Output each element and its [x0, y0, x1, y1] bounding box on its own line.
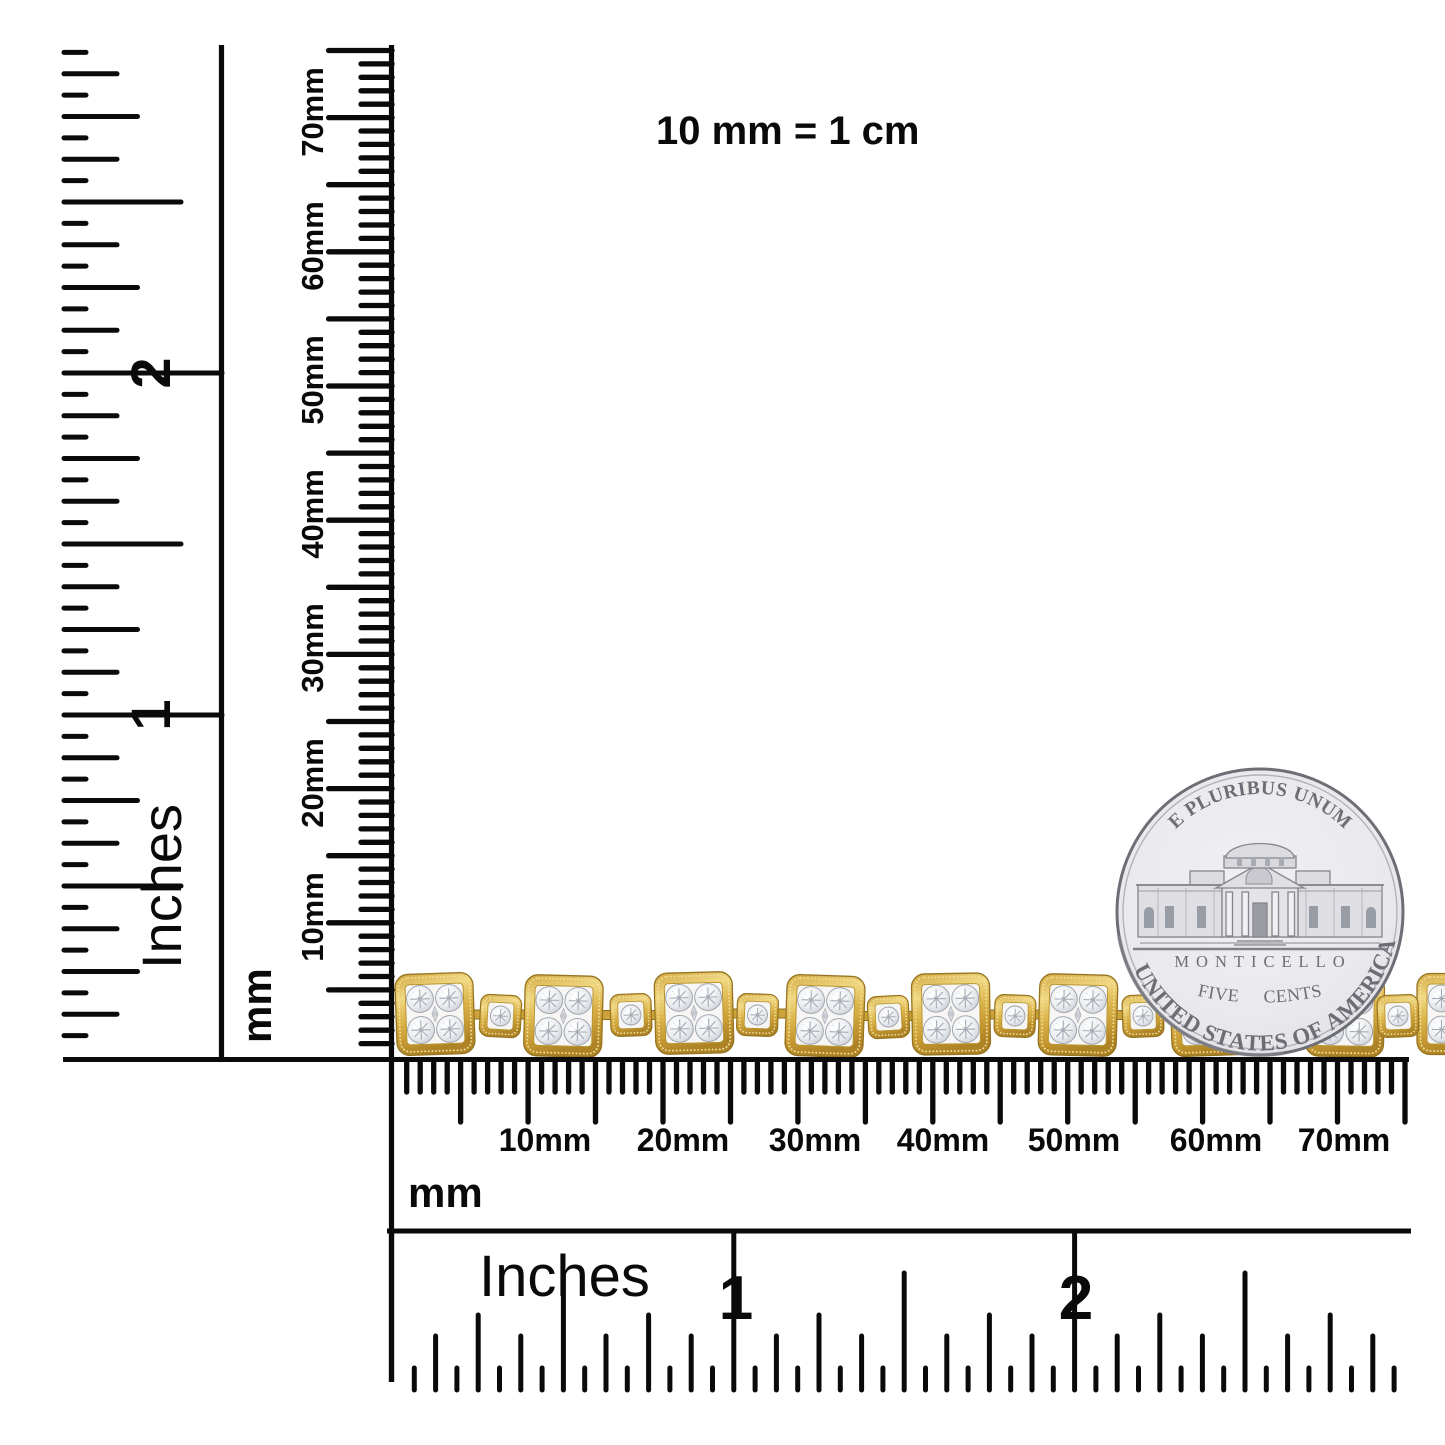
- svg-text:2: 2: [119, 357, 182, 388]
- svg-text:10 mm = 1 cm: 10 mm = 1 cm: [656, 109, 920, 153]
- svg-text:U: U: [1260, 778, 1275, 800]
- svg-text:50mm: 50mm: [295, 335, 330, 425]
- svg-text:Inches: Inches: [130, 804, 193, 969]
- svg-text:70mm: 70mm: [1298, 1122, 1391, 1158]
- svg-text:60mm: 60mm: [295, 201, 330, 291]
- svg-text:20mm: 20mm: [295, 738, 330, 828]
- svg-text:Inches: Inches: [479, 1244, 650, 1309]
- svg-text:40mm: 40mm: [897, 1122, 990, 1158]
- svg-text:MONTICELLO: MONTICELLO: [1174, 952, 1351, 971]
- svg-text:30mm: 30mm: [295, 603, 330, 693]
- svg-text:20mm: 20mm: [637, 1122, 730, 1158]
- svg-text:1: 1: [119, 699, 182, 730]
- svg-text:50mm: 50mm: [1028, 1122, 1121, 1158]
- svg-text:10mm: 10mm: [499, 1122, 592, 1158]
- svg-text:40mm: 40mm: [295, 469, 330, 559]
- svg-text:B: B: [1246, 778, 1260, 800]
- svg-text:10mm: 10mm: [295, 872, 330, 962]
- svg-text:70mm: 70mm: [295, 67, 330, 157]
- svg-text:60mm: 60mm: [1170, 1122, 1263, 1158]
- svg-text:mm: mm: [408, 1169, 483, 1216]
- svg-text:mm: mm: [233, 968, 280, 1043]
- svg-text:1: 1: [719, 1264, 753, 1333]
- svg-text:2: 2: [1059, 1264, 1093, 1333]
- svg-text:30mm: 30mm: [769, 1122, 862, 1158]
